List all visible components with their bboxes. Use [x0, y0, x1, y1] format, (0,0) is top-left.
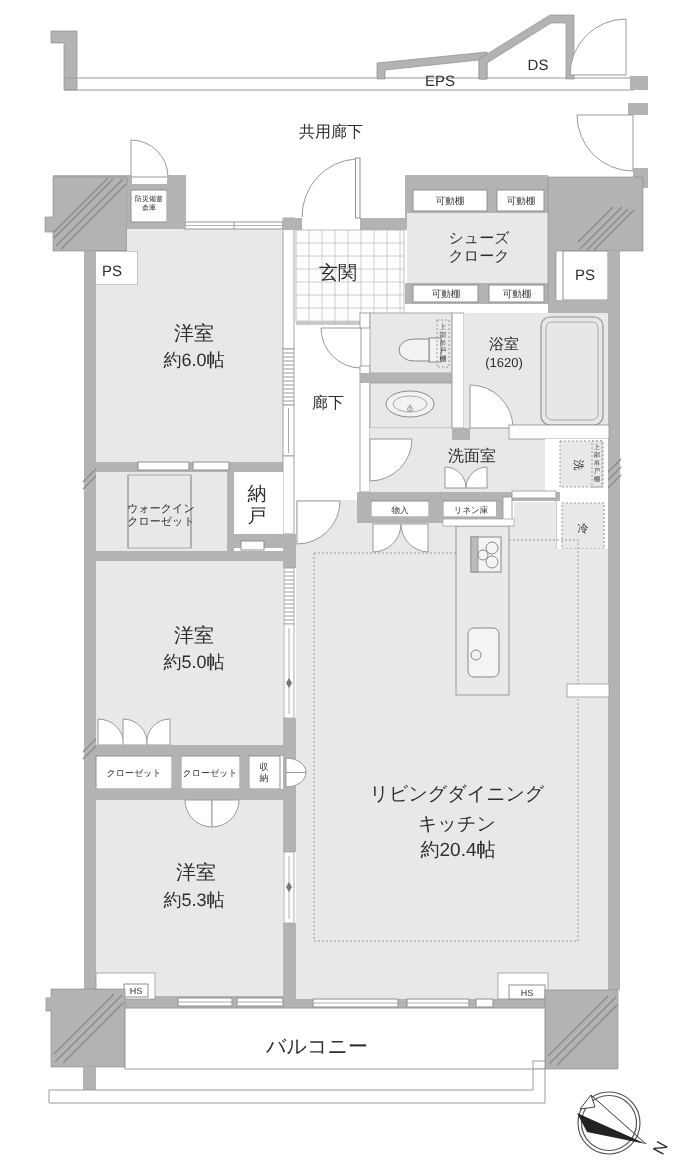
- svg-text:リネン庫: リネン庫: [454, 505, 489, 515]
- svg-text:防災備蓄: 防災備蓄: [135, 195, 163, 203]
- svg-text:上部吊戸棚: 上部吊戸棚: [440, 323, 447, 363]
- svg-text:廊下: 廊下: [312, 394, 344, 412]
- svg-text:PS: PS: [102, 263, 122, 280]
- svg-text:約5.3帖: 約5.3帖: [163, 890, 224, 910]
- svg-text:可動棚: 可動棚: [503, 289, 532, 300]
- svg-text:上部吊戸棚: 上部吊戸棚: [594, 443, 601, 483]
- svg-text:EPS: EPS: [425, 73, 455, 90]
- svg-text:共用廊下: 共用廊下: [299, 123, 363, 141]
- svg-text:シューズ: シューズ: [448, 230, 510, 247]
- svg-text:玄関: 玄関: [319, 262, 357, 284]
- svg-text:洋室: 洋室: [174, 322, 214, 345]
- svg-text:約6.0帖: 約6.0帖: [163, 350, 224, 370]
- svg-text:倉庫: 倉庫: [142, 204, 156, 212]
- svg-text:冷: 冷: [578, 523, 589, 535]
- svg-text:クローゼット: クローゼット: [182, 768, 237, 778]
- svg-text:可動棚: 可動棚: [432, 289, 461, 300]
- svg-text:洋室: 洋室: [174, 624, 214, 647]
- svg-text:ウォークイン: ウォークイン: [127, 503, 194, 515]
- svg-text:クローク: クローク: [448, 248, 509, 265]
- svg-text:洗: 洗: [572, 460, 585, 471]
- svg-text:リビングダイニング: リビングダイニング: [369, 784, 545, 805]
- svg-text:(1620): (1620): [485, 355, 523, 370]
- svg-text:戸: 戸: [248, 506, 267, 527]
- svg-text:納: 納: [248, 484, 267, 505]
- svg-text:可動棚: 可動棚: [507, 196, 536, 207]
- svg-text:可動棚: 可動棚: [436, 196, 465, 207]
- svg-text:洋室: 洋室: [176, 861, 216, 884]
- svg-text:約20.4帖: 約20.4帖: [421, 840, 496, 861]
- svg-text:物入: 物入: [392, 505, 410, 515]
- svg-text:浴室: 浴室: [489, 336, 519, 353]
- svg-text:DS: DS: [528, 57, 549, 74]
- svg-text:収: 収: [260, 762, 269, 772]
- svg-text:約5.0帖: 約5.0帖: [163, 652, 224, 672]
- svg-text:納: 納: [260, 773, 269, 783]
- svg-text:PS: PS: [575, 267, 595, 284]
- svg-text:洗面室: 洗面室: [448, 447, 496, 465]
- svg-text:HS: HS: [521, 988, 534, 998]
- svg-text:クローゼット: クローゼット: [106, 768, 161, 778]
- svg-text:バルコニー: バルコニー: [265, 1036, 368, 1058]
- svg-text:HS: HS: [130, 986, 143, 996]
- svg-text:キッチン: キッチン: [418, 814, 496, 835]
- svg-text:クローゼット: クローゼット: [127, 516, 194, 528]
